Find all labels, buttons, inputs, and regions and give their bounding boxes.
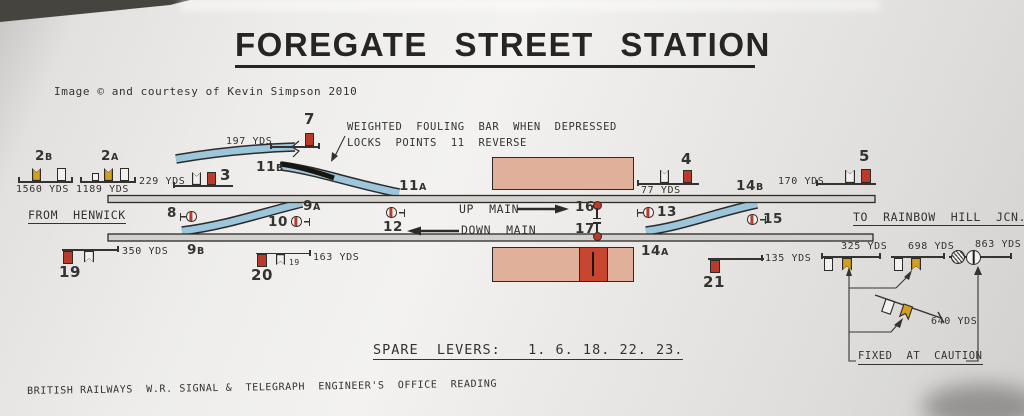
down-main-label: DOWN MAIN — [461, 224, 536, 237]
fouling-note-line2: LOCKS POINTS 11 REVERSE — [347, 138, 527, 150]
points-11a-label: 11A — [399, 179, 427, 194]
signal-box-diagram: FOREGATE STREET STATION Image © and cour… — [0, 0, 1024, 416]
signal-4-stop-arm — [683, 170, 692, 184]
signal-7-stop-arm — [305, 133, 314, 146]
signal-21-distance: 135 YDS — [765, 253, 811, 264]
points-11b-label: 11B — [256, 160, 284, 175]
signal-698-stop-outline — [894, 258, 903, 271]
signal-5-bracket — [816, 183, 876, 185]
signal-17-icon — [593, 222, 601, 241]
signal-325-stop-outline — [824, 258, 833, 271]
signal-2b-id: 2B — [35, 149, 53, 164]
signal-21-id: 21 — [703, 274, 725, 291]
points-14b-label: 14B — [736, 179, 764, 194]
disc-signal-15-icon — [747, 214, 758, 225]
disc-10-id: 10 — [268, 215, 288, 230]
signal-3-id: 3 — [220, 167, 231, 184]
points-14a-label: 14A — [641, 244, 669, 259]
signal-640-stop-outline — [882, 299, 895, 314]
up-main-label: UP MAIN — [459, 203, 519, 216]
signal-2a-distance: 1189 YDS — [76, 184, 129, 195]
disc-signal-10-icon — [291, 216, 302, 227]
disc-signal-8-icon — [186, 211, 197, 222]
fixed-at-caution-note: FIXED AT CAUTION — [858, 351, 983, 365]
signal-2b-stop-outline — [57, 168, 66, 181]
signal-box — [579, 248, 608, 281]
signal-2a-bracket — [80, 181, 136, 183]
signal-20-distance: 163 YDS — [313, 252, 359, 263]
signal-698-distance: 698 YDS — [908, 241, 954, 252]
disc-signal-12-icon — [386, 207, 397, 218]
signal-3-stop-arm — [207, 172, 216, 186]
signal-17-id: 17 — [575, 222, 595, 237]
points-9a-label: 9A — [303, 199, 321, 214]
spare-levers-note: SPARE LEVERS: 1. 6. 18. 22. 23. — [373, 343, 683, 360]
signal-2b-bracket — [18, 181, 73, 183]
signal-4-id: 4 — [681, 151, 692, 168]
signal-20-id: 20 — [251, 267, 273, 284]
signal-19-id: 19 — [59, 264, 81, 281]
signal-7-id: 7 — [304, 111, 315, 128]
signal-19-stop-arm — [63, 251, 73, 264]
fouling-note-leader — [335, 136, 345, 156]
signal-5-id: 5 — [859, 148, 870, 165]
signal-20-slot-label: 19 — [289, 259, 300, 268]
signal-325-distance: 325 YDS — [841, 241, 887, 252]
signal-4-distance: 77 YDS — [641, 185, 681, 196]
points-9b-label: 9B — [187, 243, 205, 258]
route-to-rainbow-hill: TO RAINBOW HILL JCN. — [853, 211, 1024, 226]
disc-15-id: 15 — [763, 212, 783, 227]
disc-13-id: 13 — [657, 205, 677, 220]
signal-2a-stop-outline — [120, 168, 129, 181]
disc-8-id: 8 — [167, 206, 177, 221]
disc-12-id: 12 — [383, 220, 403, 235]
disc-signal-13-icon — [643, 207, 654, 218]
signal-19-distance: 350 YDS — [122, 246, 168, 257]
signal-7-bracket — [270, 146, 320, 148]
credit-line: Image © and courtesy of Kevin Simpson 20… — [54, 86, 357, 98]
signal-863-distance: 863 YDS — [975, 239, 1021, 250]
signal-640-distance: 640 YDS — [931, 316, 977, 327]
page-title: FOREGATE STREET STATION — [235, 27, 755, 68]
signal-2b-distance: 1560 YDS — [16, 184, 69, 195]
signal-5-stop-arm — [861, 169, 871, 183]
signal-3-bracket — [173, 185, 233, 187]
signal-21-stop-arm — [710, 260, 720, 273]
signal-16-icon — [593, 201, 601, 220]
signal-2a-small-outline — [92, 173, 99, 181]
fouling-note-line1: WEIGHTED FOULING BAR WHEN DEPRESSED — [347, 122, 617, 134]
down-platform — [492, 247, 634, 282]
route-from-henwick: FROM HENWICK — [28, 209, 126, 224]
up-platform — [492, 157, 634, 190]
signal-7-distance: 197 YDS — [226, 136, 272, 147]
signal-640-distant-arm — [900, 304, 913, 319]
signal-16-id: 16 — [575, 200, 595, 215]
signal-2a-id: 2A — [101, 149, 119, 164]
banner-repeater-on-icon — [966, 250, 981, 265]
banner-repeater-icon — [951, 250, 965, 264]
signal-box-mark — [592, 252, 594, 276]
